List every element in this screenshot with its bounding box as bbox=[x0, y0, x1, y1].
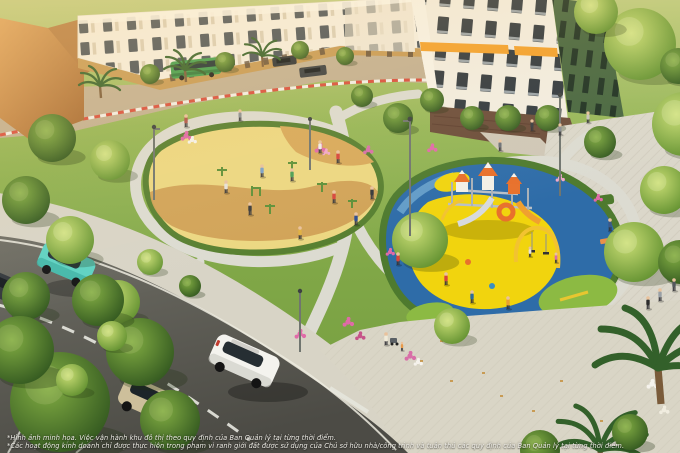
caption-line-2: *Các hoạt động kinh doanh chỉ được thực … bbox=[7, 442, 624, 451]
disclaimer-caption: *Hình ảnh minh họa. Việc vận hành khu đô… bbox=[7, 434, 624, 451]
park-illustration bbox=[0, 0, 680, 453]
scene-render: *Hình ảnh minh họa. Việc vận hành khu đô… bbox=[0, 0, 680, 453]
sunlight-overlay bbox=[0, 0, 680, 453]
